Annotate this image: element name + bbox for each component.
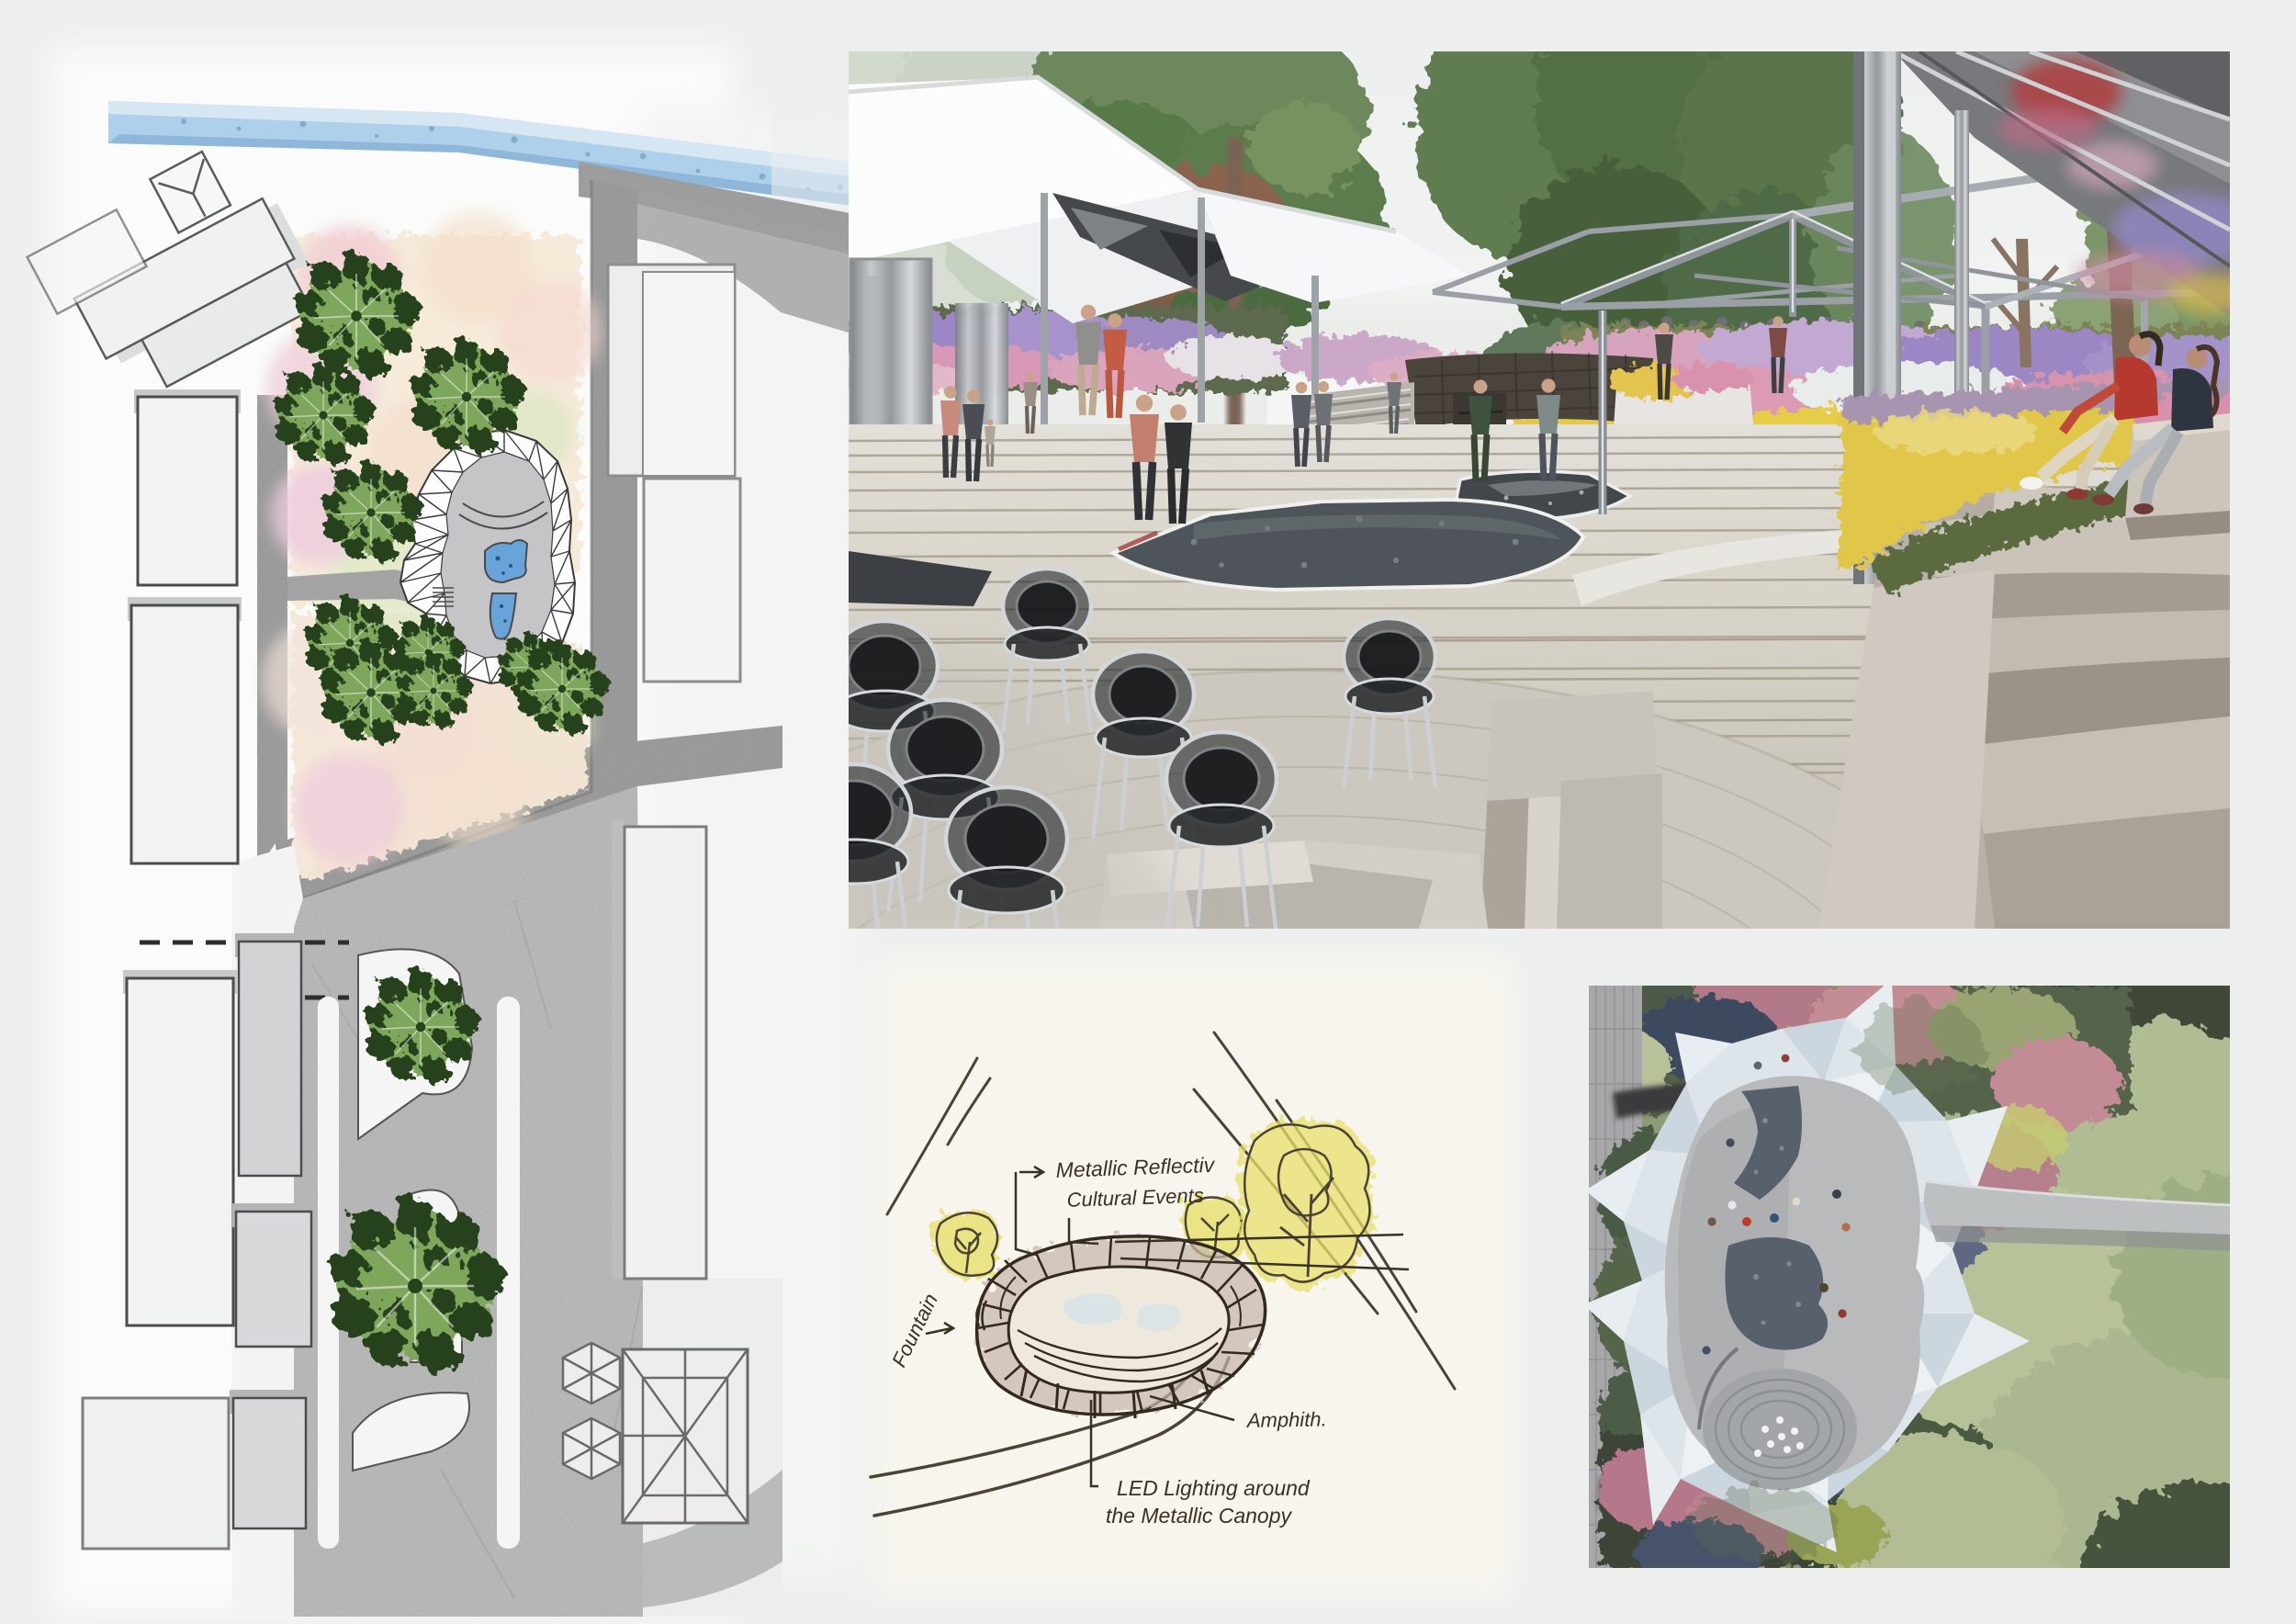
svg-text:LED Lighting around: LED Lighting around (1117, 1476, 1311, 1500)
svg-text:Amphith.: Amphith. (1245, 1407, 1327, 1432)
svg-text:the Metallic Canopy: the Metallic Canopy (1106, 1504, 1292, 1528)
svg-text:Cultural Events: Cultural Events (1066, 1184, 1204, 1212)
